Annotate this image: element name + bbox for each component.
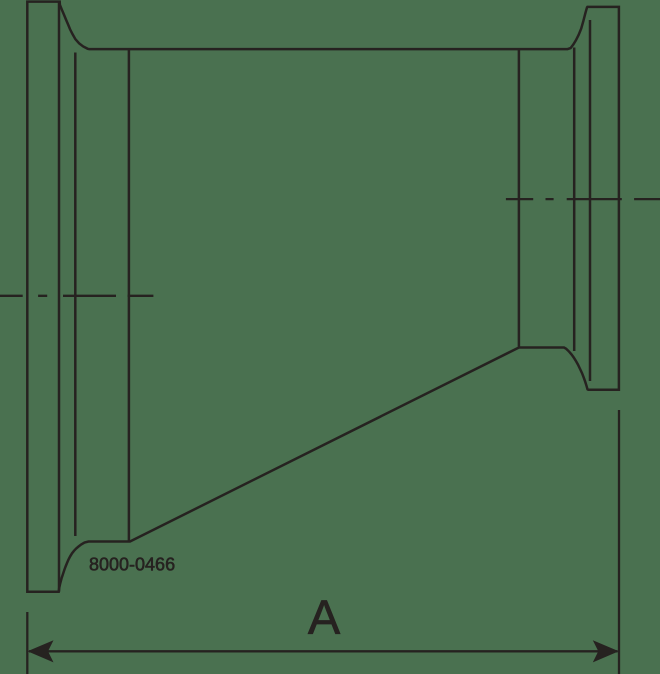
svg-text:8000-0466: 8000-0466	[89, 555, 175, 575]
svg-text:A: A	[308, 591, 341, 645]
